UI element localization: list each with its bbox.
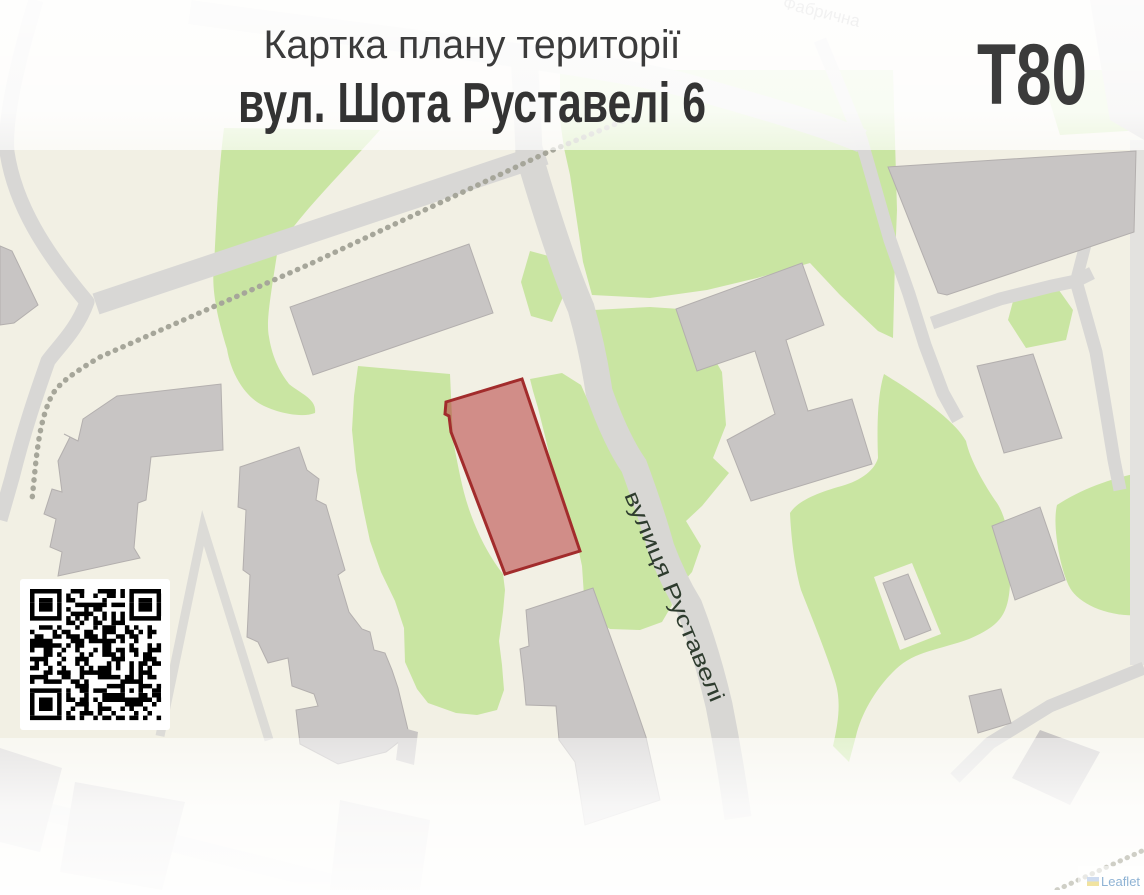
svg-text:Leaflet: Leaflet xyxy=(1101,874,1140,889)
svg-text:Картка плану території: Картка плану території xyxy=(264,23,681,67)
svg-text:вул. Шота Руставелі 6: вул. Шота Руставелі 6 xyxy=(238,71,706,135)
svg-text:T80: T80 xyxy=(977,27,1087,123)
